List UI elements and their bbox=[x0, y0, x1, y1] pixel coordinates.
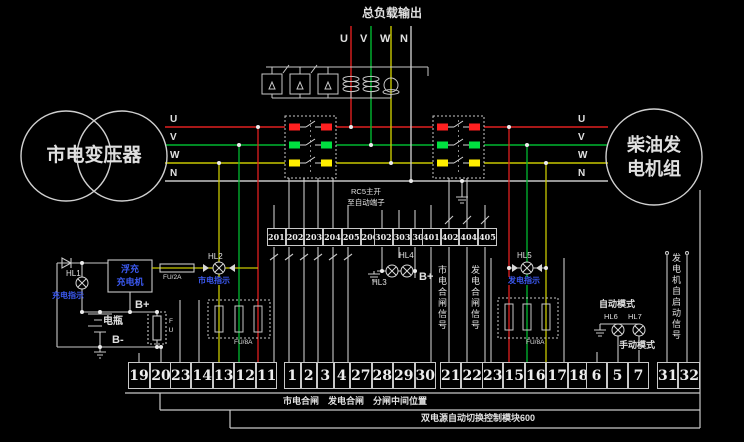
terminal-cell: 12 bbox=[234, 362, 255, 389]
plug-arrow-icon bbox=[203, 264, 209, 272]
hl4-label: HL4 bbox=[399, 252, 414, 260]
bus-left-v: V bbox=[170, 133, 177, 143]
terminal-cell: 16 bbox=[525, 362, 546, 389]
hl3-label: HL3 bbox=[372, 279, 387, 287]
ground-icon bbox=[456, 197, 468, 203]
terminal-cell: 15 bbox=[503, 362, 524, 389]
generator-fuse-box bbox=[498, 298, 558, 338]
bottom-terminal-group-4: 2122 bbox=[440, 362, 476, 389]
mid-terminal-group-a: 201202203204205206 bbox=[267, 228, 355, 246]
terminal-cell: 19 bbox=[128, 362, 150, 389]
terminal-cell: 22 bbox=[461, 362, 482, 389]
charger-label-line2: 充电机 bbox=[110, 278, 150, 287]
terminal-cell: 3 bbox=[317, 362, 334, 389]
b-plus-label: B+ bbox=[135, 300, 149, 311]
gen-fuse-box-label: FU/8A bbox=[526, 340, 544, 347]
meter-icon bbox=[297, 82, 303, 89]
bus-right-n: N bbox=[578, 169, 585, 179]
generator-label-line2: 电机组 bbox=[616, 160, 692, 178]
terminal-cell: 402 bbox=[441, 228, 460, 246]
terminal-cell: 30 bbox=[415, 362, 436, 389]
fuse-inline-label: FU/2A bbox=[163, 275, 181, 282]
terminal-cell: 405 bbox=[478, 228, 497, 246]
terminal-cell: 7 bbox=[628, 362, 649, 389]
lamp-hl3-icon bbox=[386, 265, 398, 277]
terminal-cell: 28 bbox=[372, 362, 393, 389]
bus-left-n: N bbox=[170, 169, 177, 179]
lamp-hl1-icon bbox=[76, 277, 88, 289]
ground-icon bbox=[594, 330, 606, 336]
module-outline bbox=[125, 190, 700, 428]
ats-wiring-diagram: 总负载输出 U V W N U V W N U V W N 市电变压器 柴油发 … bbox=[0, 0, 744, 442]
plug-note-line1: RC5主开 bbox=[336, 188, 396, 196]
plug-arrow-icon bbox=[512, 264, 518, 272]
terminal-cell: 401 bbox=[422, 228, 441, 246]
lamp-hl4-icon bbox=[401, 265, 413, 277]
terminal-cell: 32 bbox=[678, 362, 699, 389]
lamp-hl6-icon bbox=[612, 324, 624, 336]
meter-icon bbox=[325, 82, 331, 89]
bus-left-u: U bbox=[170, 115, 177, 125]
terminal-cell: 23 bbox=[170, 362, 191, 389]
terminal-cell: 31 bbox=[657, 362, 678, 389]
bus-right-w: W bbox=[578, 151, 587, 161]
terminal-cell: 302 bbox=[374, 228, 393, 246]
bottom-terminal-group-3: 123427282930 bbox=[284, 362, 436, 389]
terminal-cell: 11 bbox=[256, 362, 277, 389]
terminal-cell: 21 bbox=[440, 362, 461, 389]
hl7-label: HL7 bbox=[628, 313, 642, 321]
terminal-cell: 201 bbox=[267, 228, 286, 246]
generator-icon bbox=[606, 109, 702, 205]
terminal-cell: 29 bbox=[393, 362, 414, 389]
terminal-cell: 14 bbox=[191, 362, 212, 389]
plug-arrow-icon bbox=[229, 264, 235, 272]
phase-label-w: W bbox=[380, 34, 390, 45]
lamp-hl5-icon bbox=[521, 262, 533, 274]
mains-close-signal-label: 市电合闸信号 bbox=[437, 265, 446, 331]
module-name: 双电源自动切换控制模块600 bbox=[368, 414, 588, 423]
bottom-terminal-group-2: 2314131211 bbox=[170, 362, 268, 389]
auto-mode-label: 自动模式 bbox=[599, 300, 635, 309]
terminal-cell: 17 bbox=[546, 362, 567, 389]
hl5-caption: 发电指示 bbox=[508, 277, 540, 285]
hl5-label: HL5 bbox=[517, 252, 532, 260]
manual-mode-label: 手动模式 bbox=[619, 341, 655, 350]
generator-contactor bbox=[433, 116, 484, 178]
mains-contactor bbox=[285, 116, 336, 178]
terminal-cell: 205 bbox=[342, 228, 361, 246]
hl6-label: HL6 bbox=[604, 313, 618, 321]
bottom-terminal-group-7: 3132 bbox=[657, 362, 697, 389]
hl2-label: HL2 bbox=[208, 253, 223, 261]
lamp-hl7-icon bbox=[633, 324, 645, 336]
load-feeder-lines bbox=[351, 26, 411, 181]
terminal-cell: 1 bbox=[284, 362, 301, 389]
hl1-label: HL1 bbox=[66, 270, 81, 278]
load-output-title: 总负载输出 bbox=[342, 7, 442, 19]
generator-label-line1: 柴油发 bbox=[616, 136, 692, 154]
terminal-cell: 6 bbox=[586, 362, 607, 389]
mid-terminal-group-b: 302303305 bbox=[374, 228, 421, 246]
position-labels: 市电合闸 发电合闸 分闸中间位置 bbox=[283, 397, 427, 406]
b-plus-mid-label: B+ bbox=[419, 272, 433, 283]
bottom-terminal-group-6: 657 bbox=[586, 362, 649, 389]
terminal-cell: 4 bbox=[334, 362, 351, 389]
bus-left-w: W bbox=[170, 151, 179, 161]
terminal-cell: 13 bbox=[213, 362, 234, 389]
battery-label: 电瓶 bbox=[102, 317, 124, 327]
bottom-terminal-group-5: 2315161718 bbox=[482, 362, 573, 389]
fuse-icon bbox=[153, 316, 161, 340]
bus-right-v: V bbox=[578, 133, 585, 143]
charger-label-line1: 浮充 bbox=[112, 265, 148, 274]
gen-autostart-signal-label: 发电机自启动信号 bbox=[671, 253, 680, 341]
terminal-cell: 27 bbox=[350, 362, 371, 389]
sensing-lines-right bbox=[509, 127, 546, 362]
hl1-caption: 充电指示 bbox=[52, 292, 84, 300]
meter-icon bbox=[269, 82, 275, 89]
hl2-caption: 市电指示 bbox=[198, 277, 230, 285]
b-minus-label: B- bbox=[112, 335, 124, 346]
terminal-cell: 2 bbox=[301, 362, 318, 389]
bottom-terminal-group-1: 1920 bbox=[128, 362, 172, 389]
lamp-hl2-icon bbox=[213, 262, 225, 274]
metering-section bbox=[262, 65, 428, 98]
sensing-lines-left bbox=[219, 127, 258, 362]
mains-fuse-box-label: FU/8A bbox=[234, 340, 252, 347]
terminal-cell: 204 bbox=[323, 228, 342, 246]
terminal-cell: 202 bbox=[286, 228, 305, 246]
phase-label-u: U bbox=[340, 34, 348, 45]
fuse-vertical-label: FU bbox=[167, 318, 174, 336]
plug-note-line2: 至自动端子 bbox=[336, 199, 396, 207]
phase-label-n: N bbox=[400, 34, 408, 45]
gen-close-signal-label: 发电合闸信号 bbox=[470, 265, 479, 331]
mains-transformer-label: 市电变压器 bbox=[24, 146, 164, 165]
terminal-cell: 23 bbox=[482, 362, 503, 389]
mid-terminal-group-c: 401402404405 bbox=[422, 228, 494, 246]
plug-arrow-icon bbox=[536, 264, 542, 272]
terminal-cell: 203 bbox=[304, 228, 323, 246]
terminal-cell: 5 bbox=[607, 362, 628, 389]
bus-lines bbox=[165, 127, 608, 163]
bus-right-u: U bbox=[578, 115, 585, 125]
terminal-cell: 20 bbox=[150, 362, 172, 389]
phase-label-v: V bbox=[360, 34, 367, 45]
terminal-cell: 404 bbox=[459, 228, 478, 246]
terminal-cell: 303 bbox=[393, 228, 412, 246]
